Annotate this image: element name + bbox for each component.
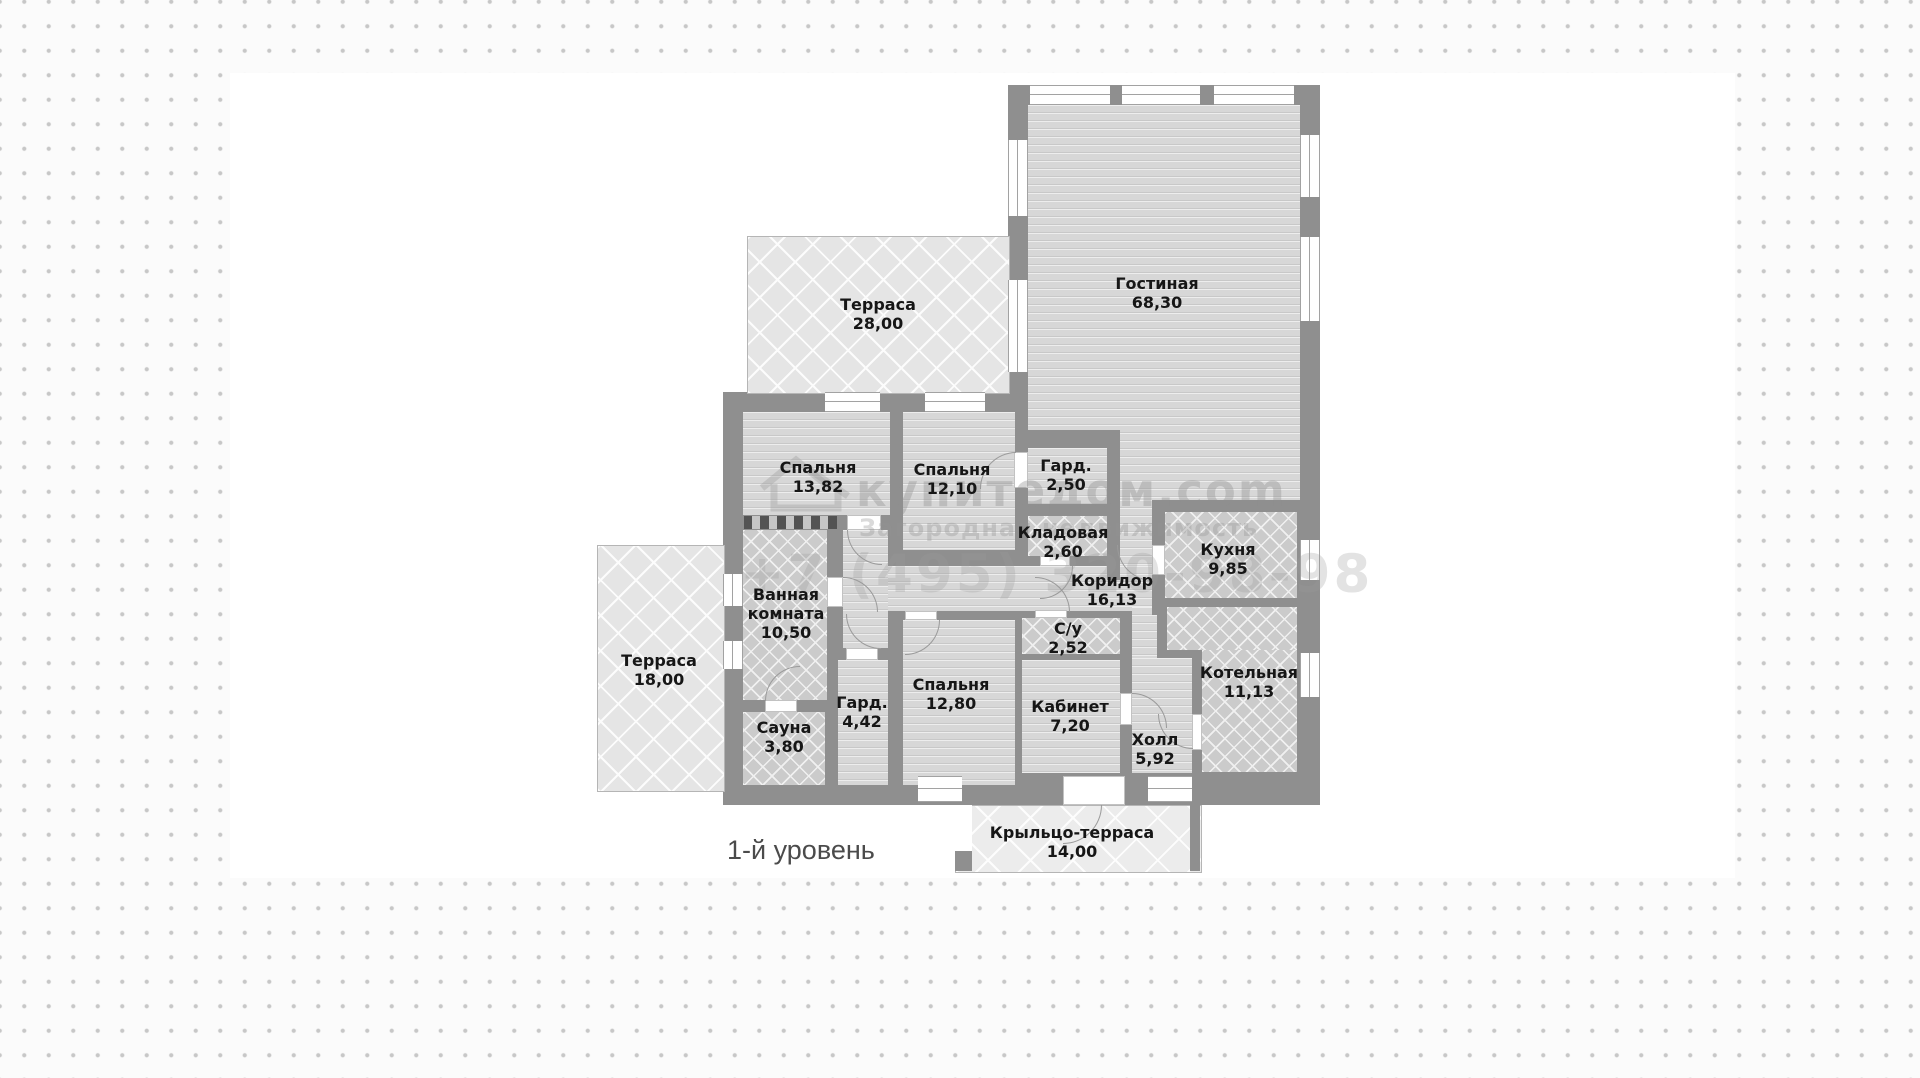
window [1148,776,1192,802]
room-label-living: Гостиная68,30 [1082,275,1232,315]
room-name: Крыльцо-терраса [962,824,1182,843]
room-name: Кухня [1153,541,1303,560]
room-label-terrace-28: Терраса28,00 [803,296,953,336]
window [1300,237,1320,321]
room-name: Кабинет [995,698,1145,717]
dashed-wall [743,515,838,530]
room-label-wc: С/у2,52 [993,620,1143,660]
door-opening [1063,776,1125,805]
room-name: Коридор [1037,572,1187,591]
room-area: 5,92 [1080,750,1230,769]
room-name: Терраса [584,652,734,671]
room-label-porch: Крыльцо-терраса14,00 [962,824,1182,864]
room-name: Ванная комната [736,586,836,624]
room-label-storage: Кладовая2,60 [988,524,1138,564]
room-label-corridor: Коридор16,13 [1037,572,1187,612]
room-name: Спальня [876,676,1026,695]
window [1300,135,1320,197]
room-name: Холл [1080,731,1230,750]
floor-plan: купитедом.com Загородная недвижимость +7… [0,0,1920,1078]
window [1008,140,1028,216]
room-area: 68,30 [1082,294,1232,313]
room-name: Терраса [803,296,953,315]
partition-wall [1015,430,1120,448]
room-label-boiler: Котельная11,13 [1174,664,1324,704]
room-label-hall: Холл5,92 [1080,731,1230,771]
room-name: Кладовая [988,524,1138,543]
room-area: 14,00 [962,843,1182,862]
room-name: Гард. [991,457,1141,476]
window [1214,85,1294,105]
room-area: 2,52 [993,639,1143,658]
room-boiler-floor [1167,607,1297,650]
room-name: Спальня [743,459,893,478]
room-label-bathroom: Ванная комната10,50 [736,586,836,626]
window [1122,85,1200,105]
room-label-bedroom-1382: Спальня13,82 [743,459,893,499]
window [1008,280,1028,372]
room-area: 2,60 [988,543,1138,562]
room-area: 28,00 [803,315,953,334]
room-area: 16,13 [1037,591,1187,610]
room-area: 11,13 [1174,683,1324,702]
door-opening [905,611,937,620]
window [918,776,962,802]
room-area: 10,50 [736,624,836,643]
room-area: 2,50 [991,476,1141,495]
door-opening [846,648,878,660]
level-label: 1-й уровень [727,836,875,866]
window [825,392,880,412]
room-area: 3,80 [709,738,859,757]
room-name: Гостиная [1082,275,1232,294]
room-label-terrace-18: Терраса18,00 [584,652,734,692]
window [925,392,985,412]
room-name: С/у [993,620,1143,639]
porch-side-wall [1190,805,1200,871]
room-name: Котельная [1174,664,1324,683]
room-label-ward-250: Гард.2,50 [991,457,1141,497]
room-area: 18,00 [584,671,734,690]
room-area: 13,82 [743,478,893,497]
window [1030,85,1110,105]
